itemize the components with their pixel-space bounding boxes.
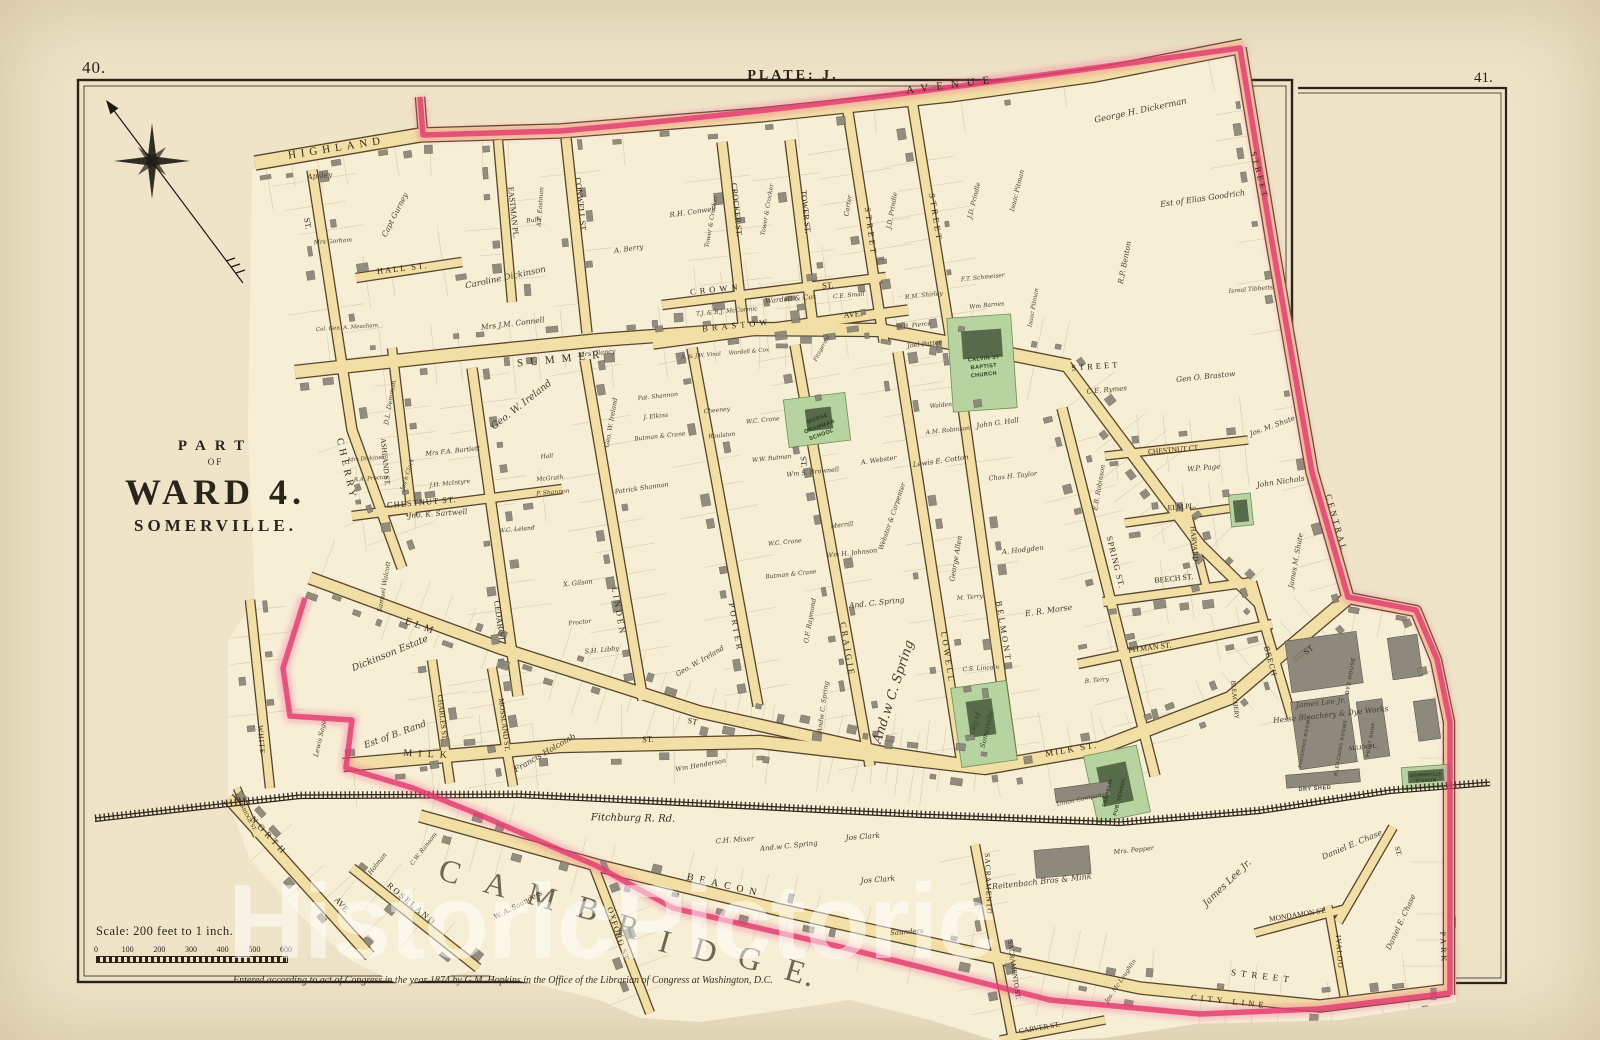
railroad-label: Fitchburg R. Rd. — [590, 812, 676, 824]
scale-tick: 400 — [217, 945, 229, 954]
page-number-left: 40. — [82, 58, 106, 78]
map-title-block: PART OF WARD 4. SOMERVILLE. — [108, 438, 323, 536]
street-label: ST. — [642, 734, 654, 744]
owner-label: Hall — [539, 452, 553, 460]
street-label: ST. — [821, 279, 833, 290]
calvin-st-baptist-church — [947, 314, 1017, 412]
scale-tick: 300 — [185, 945, 197, 954]
title-of: OF — [108, 457, 323, 467]
street-label: ST. — [302, 217, 314, 230]
street-label: ST. — [799, 456, 810, 468]
scale-tick: 0 — [94, 945, 98, 954]
owner-label: Bulls — [525, 216, 542, 224]
plate-title: PLATE: J. — [728, 68, 858, 84]
atlas-page: HIGHLANDAVENUEHALL ST.ST.CHERRYEASTMAN P… — [0, 0, 1600, 1040]
watermark: HistoricPictoric — [228, 862, 995, 983]
street-label: PARK — [1438, 931, 1449, 964]
title-part: PART — [108, 438, 323, 455]
title-ward: WARD 4. — [108, 471, 323, 513]
street-label: AVE. — [843, 308, 862, 320]
scale-tick: 100 — [122, 945, 134, 954]
compass-rose-icon — [106, 100, 245, 283]
page-number-right: 41. — [1474, 70, 1493, 87]
scale-tick: 200 — [153, 945, 165, 954]
title-city: SOMERVILLE. — [108, 516, 323, 536]
